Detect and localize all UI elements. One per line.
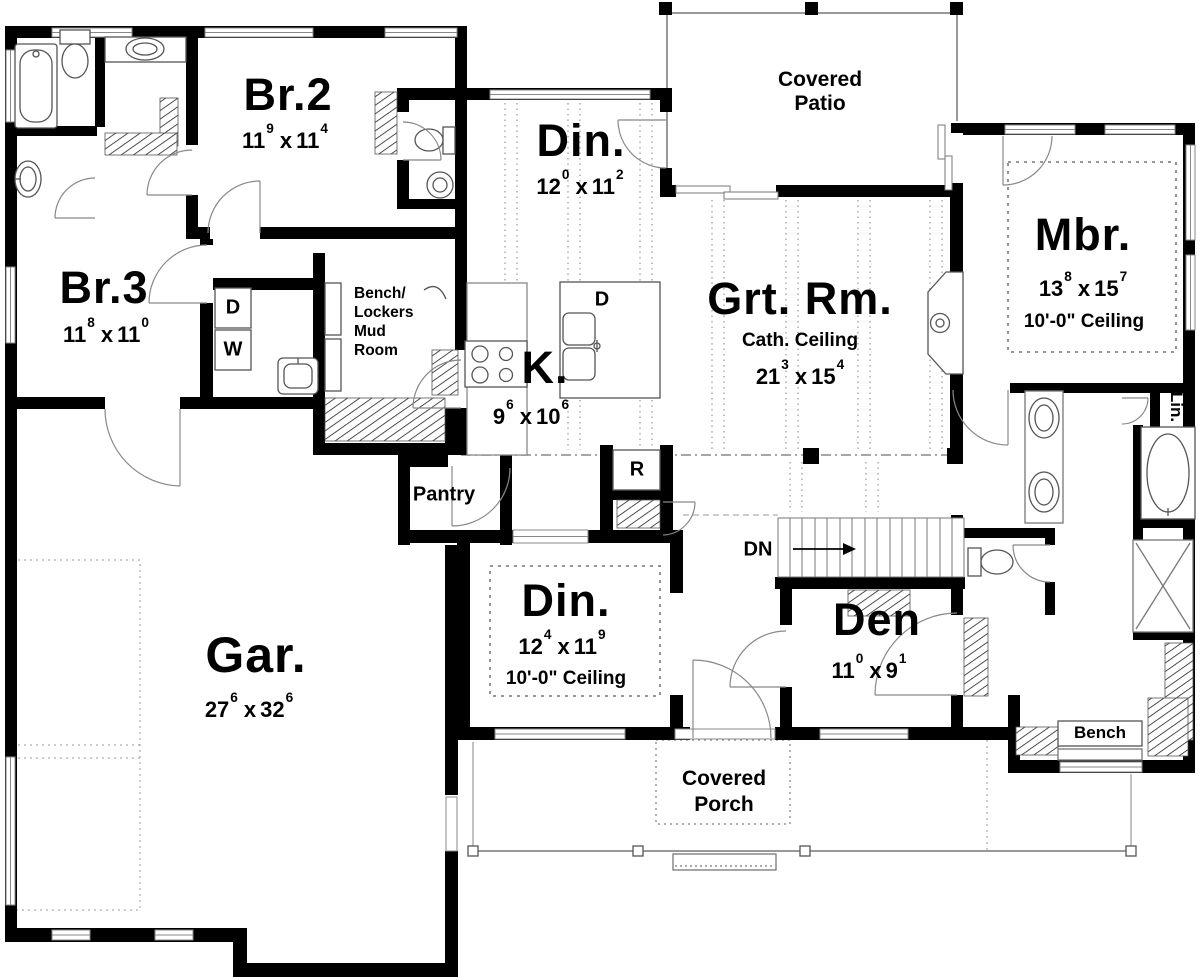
closet-hatch — [1016, 727, 1058, 755]
patio-post — [659, 2, 672, 15]
closet-hatch — [325, 398, 445, 441]
bathtub-icon — [15, 44, 57, 128]
room-label-din2: Din. — [522, 575, 611, 627]
room-label-din1: Din. — [537, 115, 626, 167]
closet-hatch — [964, 618, 988, 696]
pantry-label: Pantry — [413, 484, 475, 507]
room-dim-mbr: 138x157 — [1039, 276, 1129, 302]
closet-hatch — [105, 133, 177, 155]
room-label-garage: Gar. — [205, 626, 306, 684]
porch-steps — [673, 854, 776, 870]
closet-hatch — [375, 92, 397, 154]
sink-icon — [1029, 472, 1059, 512]
room-label-br2: Br.2 — [243, 69, 332, 121]
fireplace-icon — [928, 272, 963, 374]
room-dim-garage: 276x326 — [205, 697, 295, 723]
sink-icon — [15, 161, 41, 197]
room-ceiling-grt: Cath. Ceiling — [742, 330, 858, 352]
washer-label: W — [224, 339, 243, 362]
room-dim-din1: 120x112 — [536, 174, 625, 200]
linen-label: Lin. — [1166, 392, 1186, 422]
shower-icon — [1133, 540, 1193, 632]
post — [803, 448, 819, 464]
room-dim-br2: 119x114 — [242, 128, 330, 154]
closet-hatch — [1148, 698, 1188, 756]
stove-icon — [465, 341, 527, 387]
toilet-icon — [60, 30, 90, 78]
room-label-den: Den — [833, 594, 921, 646]
room-label-kitchen: K. — [522, 342, 569, 394]
coat-closet-hatch — [617, 500, 660, 528]
stairs-dn-label: DN — [744, 539, 773, 562]
laundry-sink-icon — [278, 358, 318, 394]
patio-post — [950, 2, 963, 15]
floor-plan: Br.2 119x114 Br.3 118x110 Din. 120x112 G… — [0, 0, 1200, 977]
patio-label-line2: Patio — [794, 92, 845, 116]
room-dim-br3: 118x110 — [63, 322, 151, 348]
sink-icon — [1029, 398, 1059, 438]
post — [947, 448, 963, 464]
mud-room-label: Bench/LockersMudRoom — [354, 284, 413, 360]
range-label: R — [630, 459, 644, 482]
master-tub-icon — [1141, 427, 1195, 519]
porch-label-line2: Porch — [694, 793, 754, 817]
dishwasher-label: D — [595, 289, 609, 312]
garage-post — [5, 742, 17, 758]
porch-label-line1: Covered — [682, 767, 766, 791]
room-dim-den: 110x91 — [832, 658, 909, 684]
room-dim-kitchen: 96x106 — [493, 404, 571, 430]
room-dim-grt: 213x154 — [756, 364, 846, 390]
pedestal-sink-icon — [427, 172, 453, 198]
room-ceiling-din2: 10'-0" Ceiling — [506, 668, 626, 690]
room-label-br3: Br.3 — [59, 262, 148, 314]
room-ceiling-mbr: 10'-0" Ceiling — [1024, 311, 1144, 333]
bench-label: Bench — [1074, 723, 1126, 743]
patio-label-line1: Covered — [778, 68, 862, 92]
locker-hatch — [432, 350, 458, 395]
room-dim-din2: 124x119 — [518, 634, 607, 660]
room-label-mbr: Mbr. — [1035, 209, 1132, 261]
staircase — [778, 518, 964, 577]
toilet-icon — [968, 548, 1013, 576]
room-label-grt: Grt. Rm. — [707, 273, 893, 325]
patio-post — [805, 2, 818, 15]
vanity-sink-icon — [105, 37, 186, 62]
dryer-label: D — [226, 297, 240, 320]
